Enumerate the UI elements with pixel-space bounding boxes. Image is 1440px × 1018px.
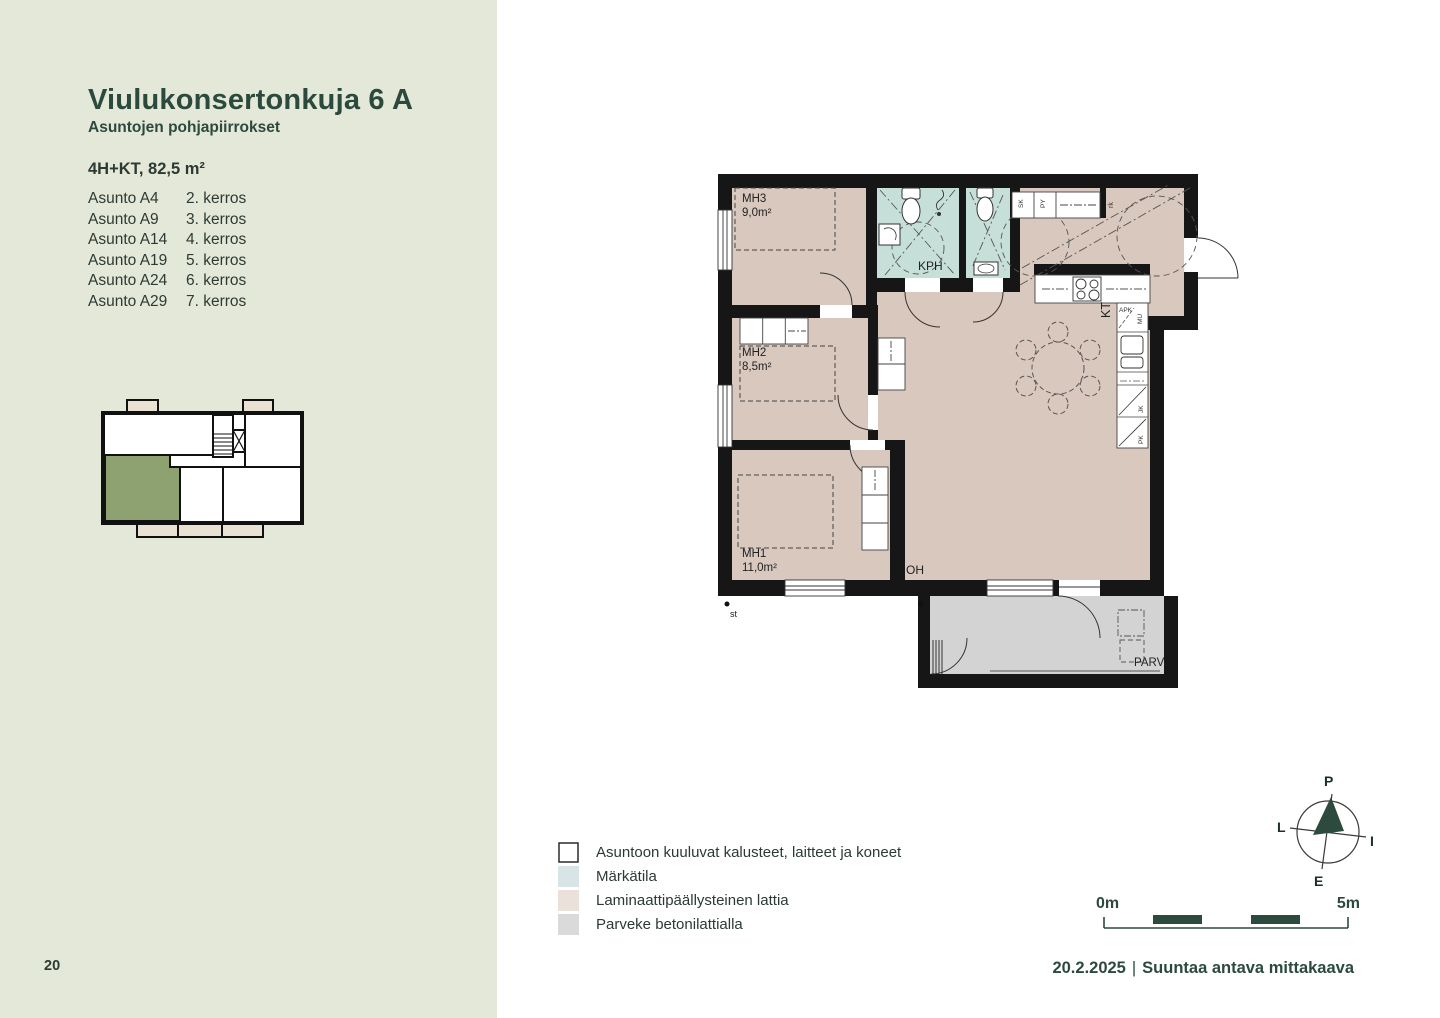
apartment-floor: 2. kerros xyxy=(186,189,246,210)
legend-swatch-furniture xyxy=(558,842,579,863)
scale-end-label: 5m xyxy=(1337,895,1360,912)
list-item: Asunto A4 2. kerros xyxy=(88,189,246,210)
room-label-kph: KPH xyxy=(918,259,943,273)
legend-label: Parveke betonilattialla xyxy=(596,916,743,933)
apartment-list: Asunto A4 2. kerros Asunto A9 3. kerros … xyxy=(88,189,246,312)
room-area-mh3: 9,0m² xyxy=(742,207,772,219)
apartment-floor: 3. kerros xyxy=(186,210,246,231)
scale-start-label: 0m xyxy=(1096,895,1119,912)
footer-separator: | xyxy=(1126,959,1142,977)
keyplan-balcony xyxy=(137,523,178,537)
apartment-type-heading: 4H+KT, 82,5 m² xyxy=(88,160,205,179)
corner-dot xyxy=(919,602,924,607)
apartment-name: Asunto A24 xyxy=(88,271,186,292)
list-item: Asunto A9 3. kerros xyxy=(88,210,246,231)
apartment-floor: 7. kerros xyxy=(186,292,246,313)
balcony-floor xyxy=(930,596,1164,674)
footer-note: Suuntaa antava mittakaava xyxy=(1142,959,1354,977)
corner-dot xyxy=(725,602,730,607)
apartment-name: Asunto A9 xyxy=(88,210,186,231)
label-apk: APK xyxy=(1119,307,1133,314)
legend-swatch-balcony xyxy=(558,914,579,935)
room-label-oh: OH xyxy=(906,563,924,577)
legend-swatch-wet-room xyxy=(558,866,579,887)
scale-segment xyxy=(1251,915,1300,924)
room-label-mh1: MH1 xyxy=(742,548,766,560)
sidebar-panel: Viulukonsertonkuja 6 A Asuntojen pohjapi… xyxy=(0,0,497,1018)
label-rk: rk xyxy=(1108,202,1115,208)
room-label-mh2: MH2 xyxy=(742,347,766,359)
legend-swatch-laminate xyxy=(558,890,579,911)
room-label-mh3: MH3 xyxy=(742,193,766,205)
legend-item: Laminaattipäällysteinen lattia xyxy=(558,890,901,911)
room-area-mh2: 8,5m² xyxy=(742,361,772,373)
compass-label-east: I xyxy=(1370,833,1374,849)
apartment-name: Asunto A19 xyxy=(88,251,186,272)
apartment-name: Asunto A29 xyxy=(88,292,186,313)
list-item: Asunto A24 6. kerros xyxy=(88,271,246,292)
room-label-parv: PARV. xyxy=(1134,657,1166,669)
keyplan-highlighted-apartment xyxy=(105,455,180,521)
legend-item: Märkätila xyxy=(558,866,901,887)
label-st: st xyxy=(730,609,738,619)
legend-label: Laminaattipäällysteinen lattia xyxy=(596,892,789,909)
scale-bar: 0m 5m xyxy=(1092,886,1366,934)
list-item: Asunto A19 5. kerros xyxy=(88,251,246,272)
label-mu: MU xyxy=(1137,314,1144,324)
page-title: Viulukonsertonkuja 6 A xyxy=(88,84,413,117)
apartment-floor: 4. kerros xyxy=(186,230,246,251)
scale-segment xyxy=(1153,915,1202,924)
apartment-floor: 6. kerros xyxy=(186,271,246,292)
room-label-kt: KT xyxy=(1099,302,1113,318)
label-sk: SK xyxy=(1018,199,1025,208)
legend: Asuntoon kuuluvat kalusteet, laitteet ja… xyxy=(558,842,901,938)
label-jk: JK xyxy=(1138,405,1145,413)
keyplan-balcony xyxy=(178,523,222,537)
page-subtitle: Asuntojen pohjapiirrokset xyxy=(88,119,280,137)
list-item: Asunto A14 4. kerros xyxy=(88,230,246,251)
list-item: Asunto A29 7. kerros xyxy=(88,292,246,313)
legend-label: Asuntoon kuuluvat kalusteet, laitteet ja… xyxy=(596,844,901,861)
compass-label-north: P xyxy=(1324,773,1333,789)
building-key-plan xyxy=(100,398,305,540)
footer: 20.2.2025|Suuntaa antava mittakaava xyxy=(1052,959,1354,978)
keyplan-stairwell xyxy=(213,415,233,457)
floor-plan: MH3 9,0m² MH2 8,5m² MH1 11,0m² KPH OH KT… xyxy=(690,160,1250,720)
label-py: PY xyxy=(1040,199,1047,208)
room-mh1-floor xyxy=(725,450,885,580)
legend-label: Märkätila xyxy=(596,868,657,885)
label-pk: PK xyxy=(1138,435,1145,444)
page-number: 20 xyxy=(44,958,60,974)
living-kitchen-floor xyxy=(875,285,1155,580)
apartment-name: Asunto A4 xyxy=(88,189,186,210)
apartment-name: Asunto A14 xyxy=(88,230,186,251)
footer-date: 20.2.2025 xyxy=(1052,959,1125,977)
compass-label-west: L xyxy=(1277,819,1286,835)
apartment-floor: 5. kerros xyxy=(186,251,246,272)
keyplan-balcony xyxy=(222,523,263,537)
compass-rose: P I E L xyxy=(1276,770,1391,895)
legend-item: Parveke betonilattialla xyxy=(558,914,901,935)
room-area-mh1: 11,0m² xyxy=(742,562,777,574)
legend-item: Asuntoon kuuluvat kalusteet, laitteet ja… xyxy=(558,842,901,863)
